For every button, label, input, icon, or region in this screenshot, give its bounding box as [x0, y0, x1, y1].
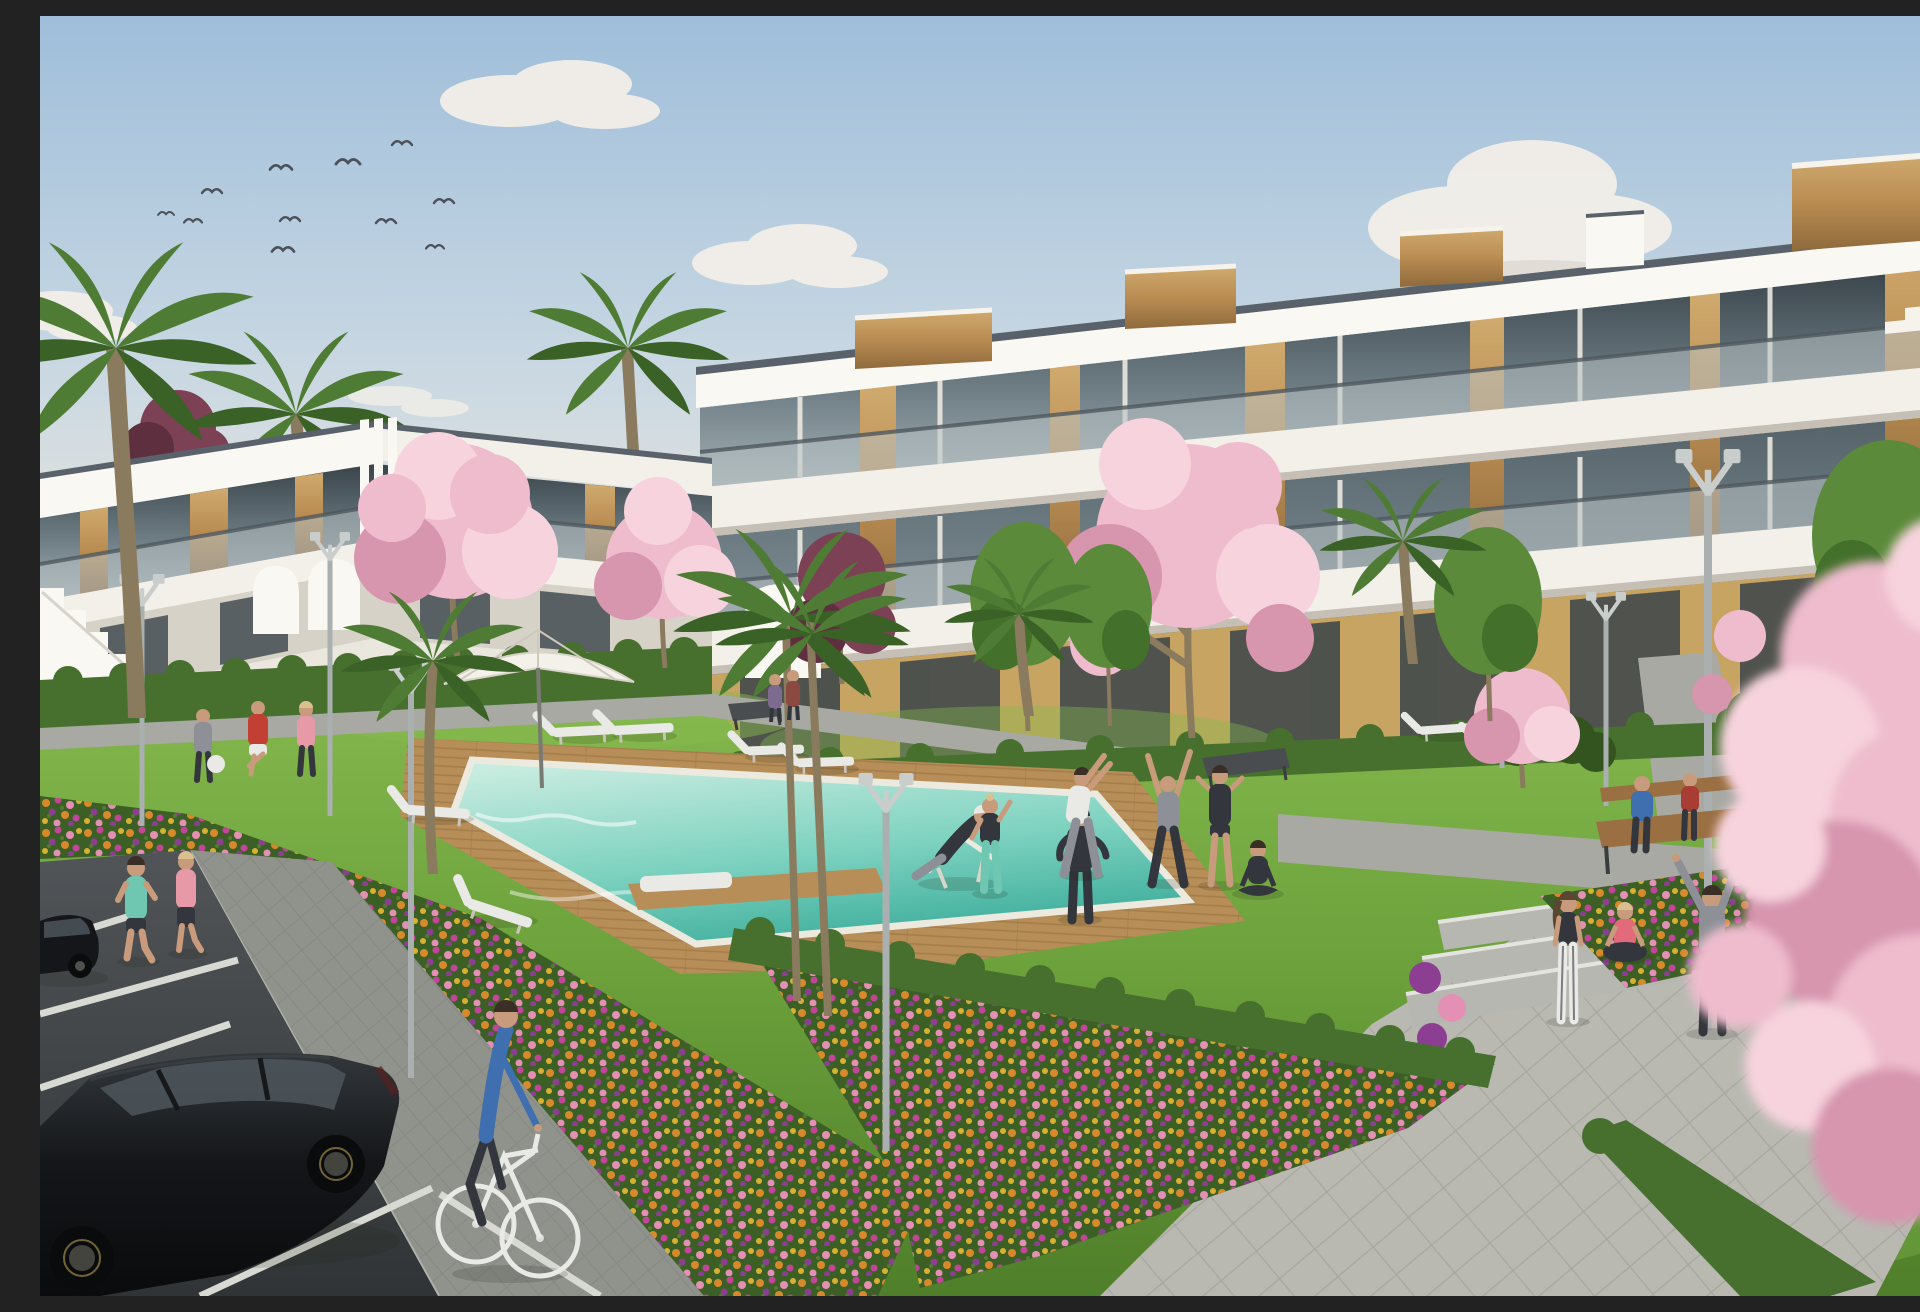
black-hatchback-car [40, 1053, 400, 1296]
property-render-image [40, 16, 1920, 1296]
render-canvas [40, 16, 1920, 1296]
arch-volume [308, 559, 360, 630]
ball [207, 755, 225, 773]
arch-volume [253, 566, 299, 634]
